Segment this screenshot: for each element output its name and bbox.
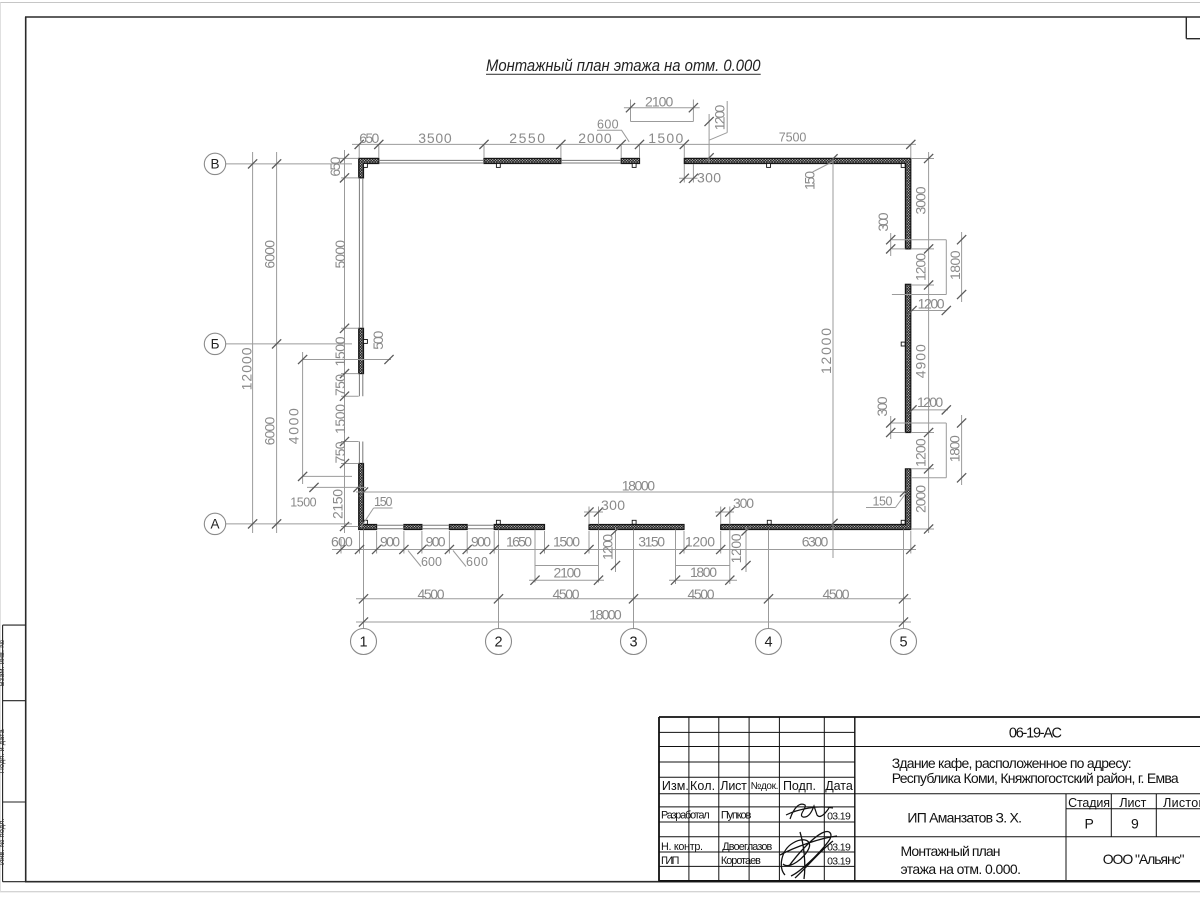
svg-text:3: 3 xyxy=(629,635,637,651)
svg-text:Н. контр.: Н. контр. xyxy=(661,841,703,853)
svg-text:2550: 2550 xyxy=(509,130,545,146)
svg-text:4500: 4500 xyxy=(553,586,580,602)
svg-text:Р: Р xyxy=(1085,816,1094,832)
svg-text:№док.: №док. xyxy=(751,781,779,792)
svg-text:1200: 1200 xyxy=(600,534,616,560)
svg-text:600: 600 xyxy=(331,534,353,550)
svg-text:Лист: Лист xyxy=(720,779,747,793)
svg-text:1200: 1200 xyxy=(918,295,945,311)
svg-text:6000: 6000 xyxy=(262,240,278,269)
svg-text:3500: 3500 xyxy=(418,130,452,146)
svg-text:1200: 1200 xyxy=(711,104,727,130)
svg-text:18000: 18000 xyxy=(622,478,656,494)
svg-text:4: 4 xyxy=(764,635,772,651)
svg-text:900: 900 xyxy=(426,534,446,550)
svg-text:этажа на отм. 0.000.: этажа на отм. 0.000. xyxy=(901,861,1022,877)
svg-text:Подп.: Подп. xyxy=(783,779,816,793)
svg-text:В: В xyxy=(210,157,219,172)
svg-text:4000: 4000 xyxy=(286,408,302,444)
svg-text:ГИП: ГИП xyxy=(661,855,679,867)
svg-text:2100: 2100 xyxy=(554,565,582,581)
svg-text:7500: 7500 xyxy=(779,130,807,144)
svg-text:Дата: Дата xyxy=(825,779,853,793)
svg-text:300: 300 xyxy=(875,212,891,231)
svg-text:900: 900 xyxy=(380,534,400,550)
svg-text:1800: 1800 xyxy=(947,435,963,462)
svg-text:650: 650 xyxy=(327,156,343,176)
svg-text:1200: 1200 xyxy=(912,438,928,467)
svg-text:12000: 12000 xyxy=(818,328,834,374)
svg-text:4900: 4900 xyxy=(912,344,928,378)
svg-text:Монтажный план: Монтажный план xyxy=(901,843,1001,859)
svg-text:650: 650 xyxy=(359,130,379,146)
svg-text:5000: 5000 xyxy=(332,240,348,269)
svg-text:Лист: Лист xyxy=(1119,796,1146,810)
svg-text:150: 150 xyxy=(873,495,893,509)
svg-text:1200: 1200 xyxy=(685,534,715,550)
svg-text:2000: 2000 xyxy=(578,130,612,146)
svg-text:А: А xyxy=(210,517,219,532)
svg-text:ООО "Альянс": ООО "Альянс" xyxy=(1103,851,1185,867)
svg-text:2100: 2100 xyxy=(645,94,674,110)
svg-text:Изм.: Изм. xyxy=(662,779,689,793)
svg-text:600: 600 xyxy=(421,555,442,569)
svg-text:1200: 1200 xyxy=(728,533,744,563)
svg-text:1: 1 xyxy=(359,635,367,651)
svg-text:5: 5 xyxy=(899,635,907,651)
svg-text:1500: 1500 xyxy=(290,495,316,509)
svg-text:ИП Аманзатов З. Х.: ИП Аманзатов З. Х. xyxy=(907,809,1022,825)
svg-text:300: 300 xyxy=(733,495,754,511)
svg-text:9: 9 xyxy=(1131,816,1139,832)
svg-text:06-19-АС: 06-19-АС xyxy=(1009,726,1062,742)
svg-text:Коротаев: Коротаев xyxy=(721,855,761,867)
svg-text:1500: 1500 xyxy=(553,534,580,550)
svg-text:18000: 18000 xyxy=(589,606,622,622)
svg-text:03.19: 03.19 xyxy=(827,855,851,867)
svg-text:1200: 1200 xyxy=(912,253,928,281)
svg-text:Листов: Листов xyxy=(1163,796,1200,810)
svg-text:6300: 6300 xyxy=(802,534,829,550)
svg-text:6000: 6000 xyxy=(262,416,278,445)
svg-text:750: 750 xyxy=(332,441,348,463)
svg-text:3150: 3150 xyxy=(638,534,665,550)
svg-text:Разработал: Разработал xyxy=(661,810,710,822)
svg-text:1500: 1500 xyxy=(332,336,348,366)
svg-text:600: 600 xyxy=(466,555,488,569)
svg-text:Б: Б xyxy=(211,337,220,352)
svg-text:Двоеглазов: Двоеглазов xyxy=(722,841,772,853)
svg-text:600: 600 xyxy=(597,118,619,132)
svg-text:4500: 4500 xyxy=(823,586,850,602)
svg-text:900: 900 xyxy=(471,534,491,550)
svg-text:1500: 1500 xyxy=(332,404,348,434)
svg-text:2150: 2150 xyxy=(330,489,346,519)
svg-text:300: 300 xyxy=(697,170,721,186)
svg-text:Подп. и дата: Подп. и дата xyxy=(0,728,6,773)
svg-text:4500: 4500 xyxy=(418,586,445,602)
svg-text:1650: 1650 xyxy=(506,534,532,550)
svg-text:Стадия: Стадия xyxy=(1068,796,1110,810)
svg-text:2000: 2000 xyxy=(912,485,928,513)
svg-text:Монтажный план этажа на отм. 0: Монтажный план этажа на отм. 0.000 xyxy=(486,57,761,75)
svg-text:03.19: 03.19 xyxy=(827,811,851,823)
svg-text:12000: 12000 xyxy=(238,347,254,390)
svg-text:1800: 1800 xyxy=(947,250,963,280)
svg-text:300: 300 xyxy=(601,497,625,513)
svg-text:Инв. № подл.: Инв. № подл. xyxy=(0,818,6,865)
svg-text:1800: 1800 xyxy=(690,564,717,580)
svg-text:2: 2 xyxy=(494,635,502,651)
svg-text:300: 300 xyxy=(874,396,890,416)
svg-text:1500: 1500 xyxy=(648,130,683,146)
svg-text:Здание кафе, расположенное по: Здание кафе, расположенное по адресу: xyxy=(892,755,1132,771)
svg-text:150: 150 xyxy=(374,495,393,509)
svg-text:Республика Коми, Княжпогостски: Республика Коми, Княжпогостский район, г… xyxy=(892,770,1179,786)
svg-text:Пупков: Пупков xyxy=(721,810,752,822)
svg-text:500: 500 xyxy=(370,330,386,349)
svg-text:150: 150 xyxy=(802,171,818,190)
svg-text:750: 750 xyxy=(332,374,348,396)
svg-text:Кол.: Кол. xyxy=(690,779,715,793)
svg-text:3000: 3000 xyxy=(912,186,928,214)
svg-text:Взам. инв. №: Взам. инв. № xyxy=(0,640,6,686)
svg-text:1200: 1200 xyxy=(917,394,943,410)
svg-text:4500: 4500 xyxy=(688,586,715,602)
